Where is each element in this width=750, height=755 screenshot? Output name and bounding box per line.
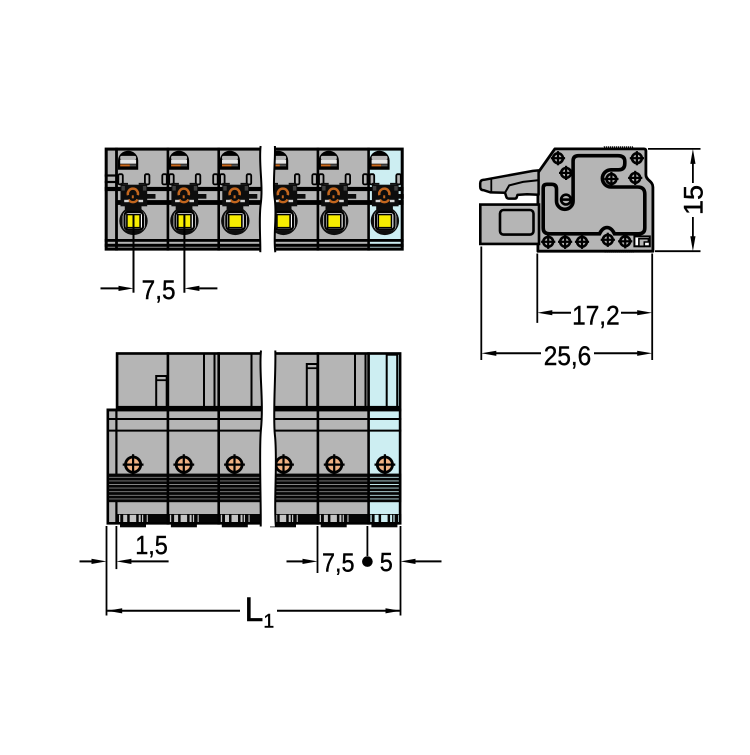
svg-text:15: 15 bbox=[679, 185, 709, 215]
svg-text:7,5: 7,5 bbox=[322, 549, 355, 577]
svg-text:25,6: 25,6 bbox=[544, 342, 591, 371]
svg-text:1,5: 1,5 bbox=[135, 532, 168, 560]
svg-text:5: 5 bbox=[380, 549, 393, 577]
svg-text:17,2: 17,2 bbox=[572, 301, 619, 330]
svg-text:7,5: 7,5 bbox=[142, 276, 176, 305]
